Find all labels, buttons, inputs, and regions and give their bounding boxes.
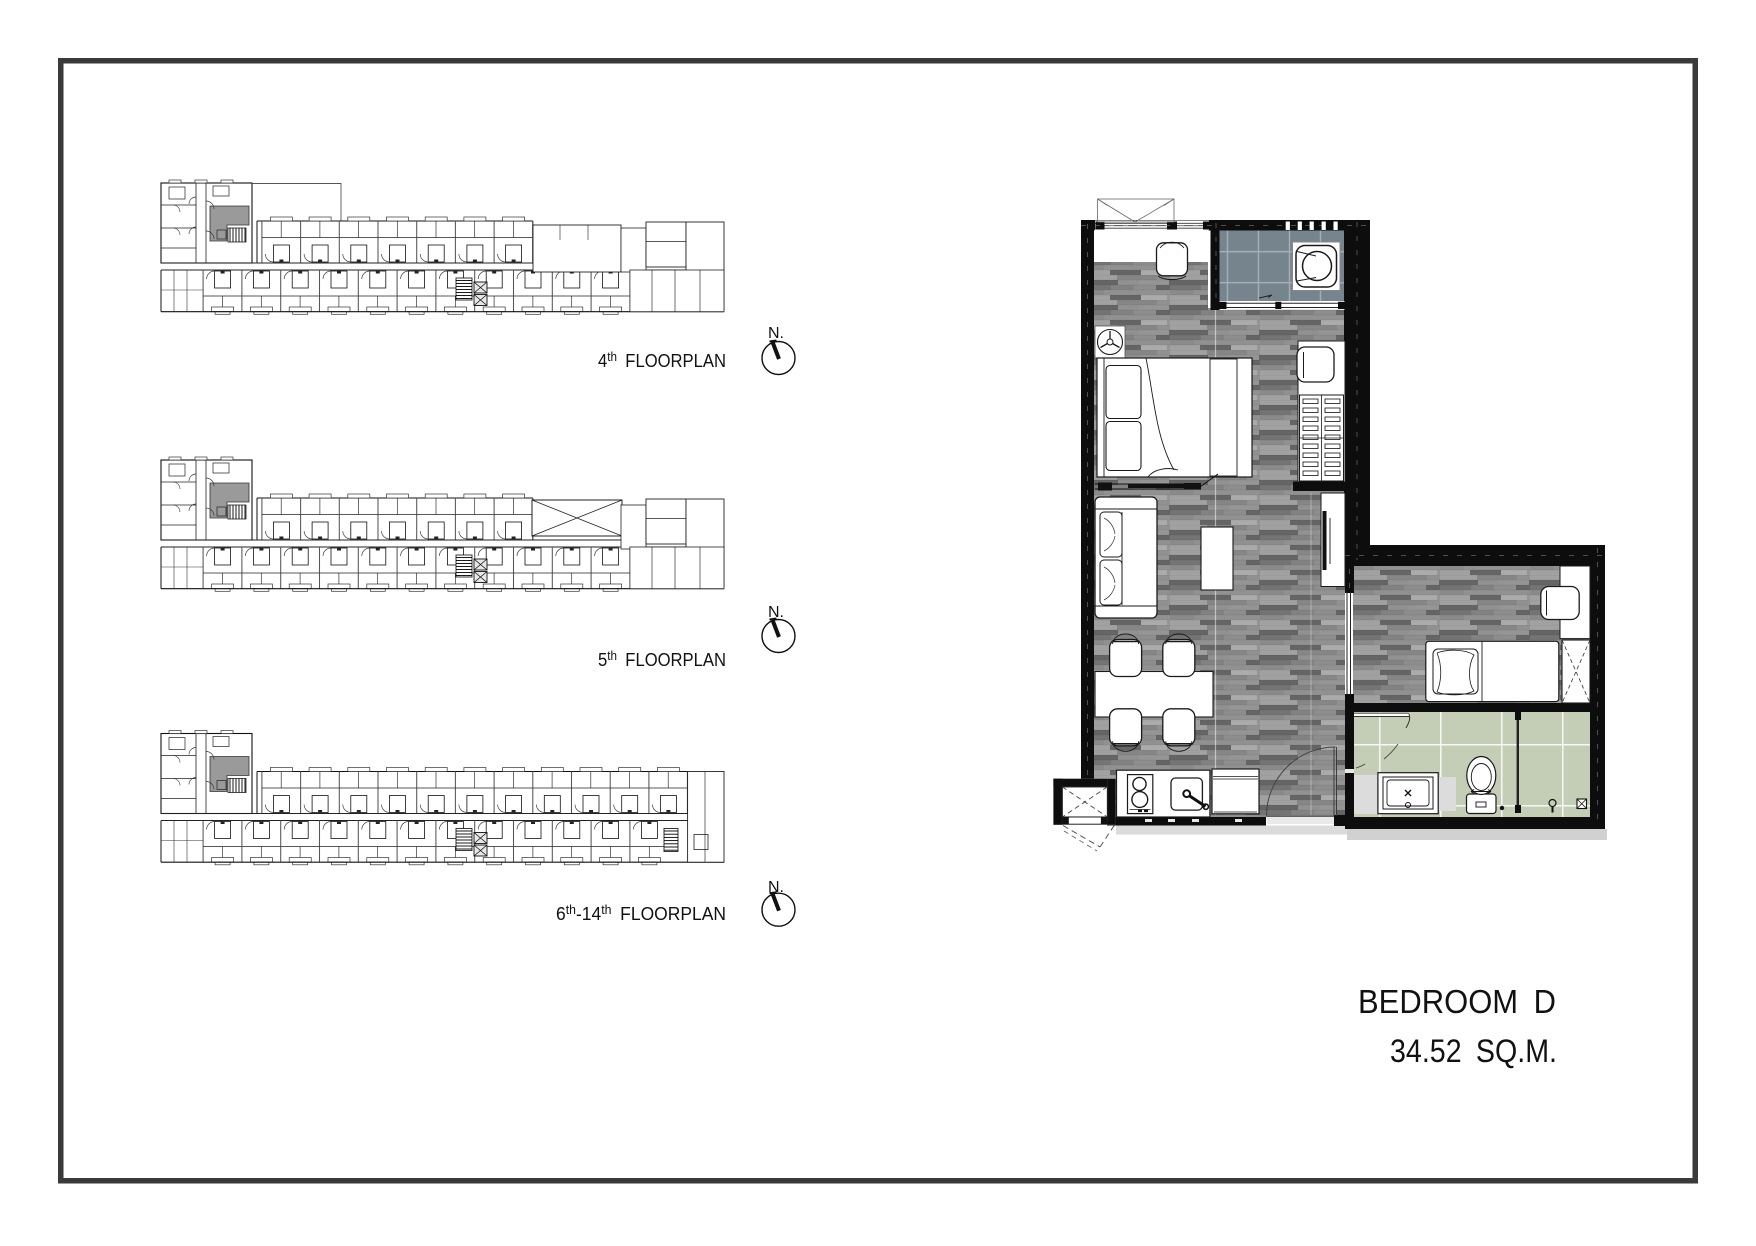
svg-text:34.52 SQ.M.: 34.52 SQ.M. (1390, 1033, 1557, 1069)
svg-text:6th-14th FLOORPLAN: 6th-14th FLOORPLAN (556, 902, 726, 924)
svg-text:BEDROOM D: BEDROOM D (1358, 984, 1556, 1021)
svg-text:4th FLOORPLAN: 4th FLOORPLAN (598, 349, 726, 371)
svg-text:N.: N. (768, 325, 784, 342)
svg-text:5th FLOORPLAN: 5th FLOORPLAN (598, 648, 726, 670)
